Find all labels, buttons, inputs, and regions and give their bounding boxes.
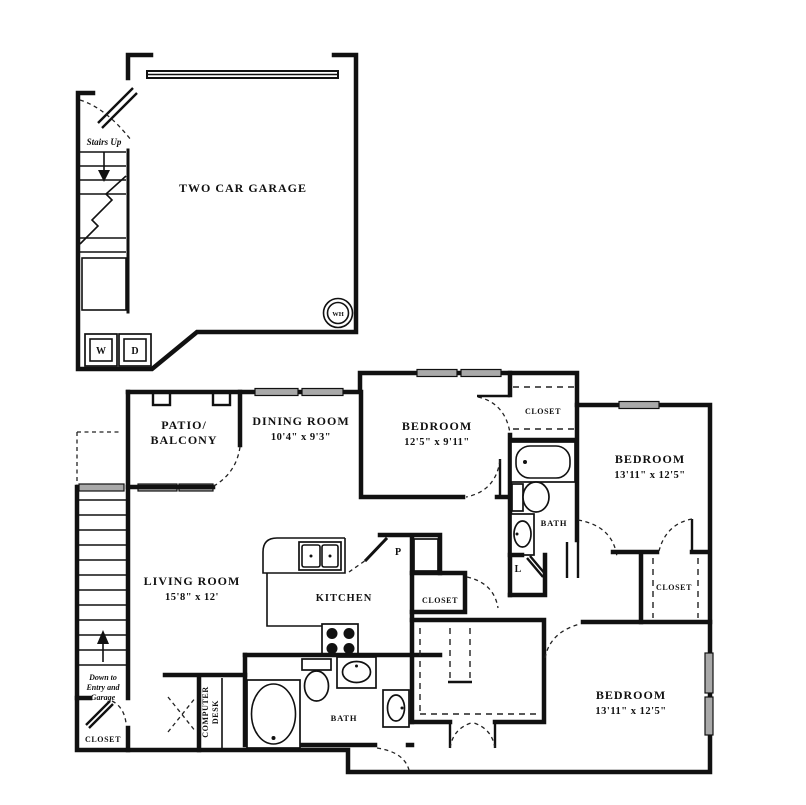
bath-lower-label: BATH	[331, 713, 358, 723]
dining-dims: 10'4" x 9'3"	[271, 432, 331, 443]
toilet	[512, 482, 549, 512]
refrigerator	[414, 539, 438, 571]
stair-landing	[82, 258, 126, 310]
stove	[322, 624, 358, 656]
closet-hall-label: CLOSET	[422, 596, 458, 605]
bath-upper-label: BATH	[541, 518, 568, 528]
stairs-up-label: Stairs Up	[87, 137, 122, 147]
hall-cased-opening	[567, 542, 578, 578]
dining-label: DINING ROOM	[252, 414, 349, 428]
bedroom1-door-swing-arc	[466, 460, 500, 497]
desk-label-1: COMPUTER	[201, 686, 210, 737]
closet-under-stairs-door-leaf	[86, 701, 113, 728]
walkin-closet-walls	[412, 620, 544, 722]
bathtub-lower	[247, 680, 300, 748]
window	[302, 389, 343, 396]
bedroom3-dims: 13'11" x 12'5"	[595, 706, 666, 717]
closets-center: CLOSET	[412, 573, 544, 748]
window	[255, 389, 298, 396]
bedroom1: BEDROOM 12'5" x 9'11"	[361, 392, 510, 497]
floor-plan-page: Stairs Up W D WH TWO CAR GARAGE	[0, 0, 806, 805]
window	[461, 370, 501, 377]
walkin-shelving-dashed	[420, 628, 538, 714]
bedroom2-label: BEDROOM	[615, 452, 685, 466]
patio-label-2: BALCONY	[150, 433, 217, 447]
closet-under-stairs-door-arc	[112, 701, 126, 723]
bathtub	[511, 442, 575, 482]
washer-label: W	[96, 346, 106, 357]
patio-dining: PATIO/ BALCONY DINING ROOM 10'4" x 9'3"	[128, 392, 350, 487]
down-label-3: Garage	[91, 693, 116, 702]
bath-lower: BATH COMPUTER DESK	[165, 655, 412, 770]
bedroom3-door-arc	[545, 624, 580, 658]
down-label-2: Entry and	[85, 683, 120, 692]
closet-under-stairs-label: CLOSET	[85, 735, 121, 744]
garage-unit: Stairs Up W D WH TWO CAR GARAGE	[78, 55, 356, 369]
pantry-angled-wall	[366, 539, 386, 560]
closet-hall-walls	[412, 573, 465, 612]
stair-rail-window	[79, 484, 124, 491]
patio-door-swing-arc	[212, 447, 240, 487]
sink-lower-1	[337, 657, 376, 688]
bedroom2-dims: 13'11" x 12'5"	[614, 470, 685, 481]
dryer-label: D	[131, 346, 138, 357]
bath-lower-door-arc	[377, 748, 409, 770]
closet-top-label: CLOSET	[525, 407, 561, 416]
stair-opening-dashed	[77, 432, 122, 485]
walkin-door-leaves	[450, 722, 495, 748]
bedroom3-label: BEDROOM	[596, 688, 666, 702]
water-heater-label: WH	[332, 311, 344, 318]
sink-lower-2	[383, 690, 409, 727]
bedroom1-dims: 12'5" x 9'11"	[404, 437, 469, 448]
linen-label: L	[515, 564, 522, 575]
window	[417, 370, 457, 377]
stairs-up-arrow	[98, 152, 110, 182]
water-heater: WH	[324, 299, 353, 328]
closet-hall-door-arc	[467, 577, 498, 608]
floor-plan-drawing: Stairs Up W D WH TWO CAR GARAGE	[0, 0, 806, 805]
bathroom-sink	[511, 514, 534, 555]
bedroom3: BEDROOM 13'11" x 12'5"	[545, 622, 710, 717]
down-label-1: Down to	[88, 673, 117, 682]
window	[705, 653, 713, 693]
living-dims: 15'8" x 12'	[165, 592, 219, 603]
window	[619, 402, 659, 409]
entry-door-leaf	[98, 88, 137, 128]
walkin-double-door-arcs	[450, 723, 495, 748]
window	[705, 697, 713, 735]
closet-right-label: CLOSET	[656, 583, 692, 592]
patio-label-1: PATIO/	[161, 418, 207, 432]
closet-right-door-arc	[659, 519, 692, 551]
kitchen-counter-edge	[267, 573, 322, 626]
toilet-lower	[302, 659, 331, 701]
living-label: LIVING ROOM	[144, 574, 241, 588]
bedroom1-label: BEDROOM	[402, 419, 472, 433]
kitchen-label: KITCHEN	[316, 593, 373, 604]
bedroom2: BEDROOM 13'11" x 12'5" CLOSET	[578, 452, 708, 622]
hall-bifold-door-dashed	[168, 697, 196, 732]
washer-dryer: W D	[85, 334, 151, 366]
stair-break-line	[80, 176, 126, 244]
garage-label: TWO CAR GARAGE	[179, 181, 307, 195]
pantry-label: P	[395, 547, 401, 558]
closet-top-door-arc	[478, 397, 510, 433]
pantry-door-dashed	[349, 560, 366, 572]
desk-label-2: DESK	[211, 700, 220, 724]
closet-top-bath: CLOSET BATH L	[477, 373, 578, 595]
